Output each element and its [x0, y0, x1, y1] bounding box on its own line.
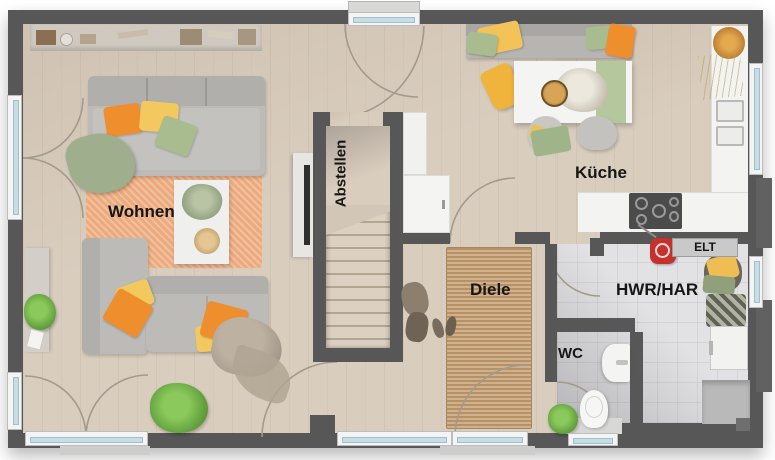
room-label-elt: ELT	[672, 240, 738, 254]
toilet-seat	[585, 396, 603, 418]
hall-hwr-wall	[545, 244, 557, 320]
toilet	[580, 390, 608, 428]
wc-top-wall	[545, 318, 635, 332]
hall-wall	[400, 232, 450, 244]
window-left	[7, 372, 22, 430]
sideboard-plant	[24, 294, 56, 330]
bookshelf	[30, 25, 262, 51]
sofa-backrest	[88, 76, 265, 106]
wc-hwr-wall	[630, 332, 643, 433]
wardrobe-handle	[442, 200, 445, 209]
cooktop	[629, 193, 682, 229]
sink-basin	[716, 126, 744, 146]
burner	[669, 211, 679, 222]
room-label-wc: WC	[558, 345, 583, 362]
window-bottom-french-door	[25, 431, 148, 446]
hwr-door-jamb	[590, 238, 604, 256]
window-glass	[754, 261, 760, 303]
chair-gray	[577, 116, 617, 150]
door-arc	[25, 376, 86, 437]
hall-cabinet-small	[403, 112, 427, 175]
laundry-basket-pattern	[706, 294, 746, 327]
window-left-door	[7, 95, 22, 220]
window-glass	[342, 437, 447, 443]
storage-room-doorway	[330, 112, 383, 126]
washing-machine	[710, 326, 748, 370]
window-hwr	[749, 256, 763, 308]
room-label-hwr: HWR/HAR	[616, 280, 698, 300]
window-glass	[30, 437, 143, 443]
floor-plan: Wohnen Abstellen Küche Diele HWR/HAR WC …	[0, 0, 775, 460]
books	[118, 29, 149, 39]
books	[80, 34, 96, 44]
sink-basin	[716, 100, 744, 122]
hall-wall	[515, 232, 550, 244]
tv-board	[293, 153, 313, 257]
window-kitchen	[749, 63, 763, 175]
door-arc	[86, 375, 148, 437]
tv	[304, 165, 310, 245]
sofa-backrest	[82, 238, 100, 354]
floor-plant	[150, 383, 208, 433]
cushion-divider	[205, 78, 207, 106]
window-bottom-terrace-door	[337, 431, 452, 446]
window-glass	[457, 437, 523, 443]
books	[36, 30, 56, 45]
room-label-wohnen: Wohnen	[108, 202, 175, 222]
door-arc	[345, 24, 418, 97]
window-glass	[573, 438, 613, 444]
pillow-orange	[604, 23, 636, 59]
burner	[635, 197, 648, 210]
entrance-door-glass	[353, 17, 415, 23]
burner	[669, 197, 679, 207]
books	[180, 29, 202, 45]
sofa-backrest	[146, 276, 268, 294]
machine-handle	[709, 341, 713, 355]
window-wc	[568, 433, 618, 446]
hall-wardrobe	[403, 175, 450, 233]
vacuum-detail	[655, 243, 670, 258]
faucet	[616, 360, 628, 365]
door-arc	[450, 178, 515, 243]
decor-plate	[60, 33, 73, 46]
window-hall-door	[452, 431, 528, 446]
window-glass	[13, 100, 19, 215]
window-glass	[754, 68, 760, 170]
room-label-abstellen: Abstellen	[333, 129, 350, 219]
wc-plant	[548, 404, 578, 434]
room-label-diele: Diele	[470, 280, 511, 300]
washbasin	[602, 344, 630, 382]
burner	[652, 204, 666, 218]
entrance-door	[348, 12, 420, 26]
wc-left-wall	[545, 332, 557, 382]
pillow-green	[466, 31, 499, 57]
books	[208, 30, 235, 40]
books	[238, 29, 256, 45]
hanging-plant	[698, 52, 744, 100]
door-arc	[455, 365, 527, 437]
snack-bowl	[541, 80, 568, 107]
towel-green	[702, 275, 735, 296]
decor-bowl	[194, 228, 220, 254]
pillow-orange	[103, 103, 143, 138]
room-label-kueche: Küche	[575, 163, 627, 183]
window-glass	[13, 377, 19, 425]
wall-pillar	[310, 415, 335, 433]
appliance-detail	[736, 418, 750, 431]
